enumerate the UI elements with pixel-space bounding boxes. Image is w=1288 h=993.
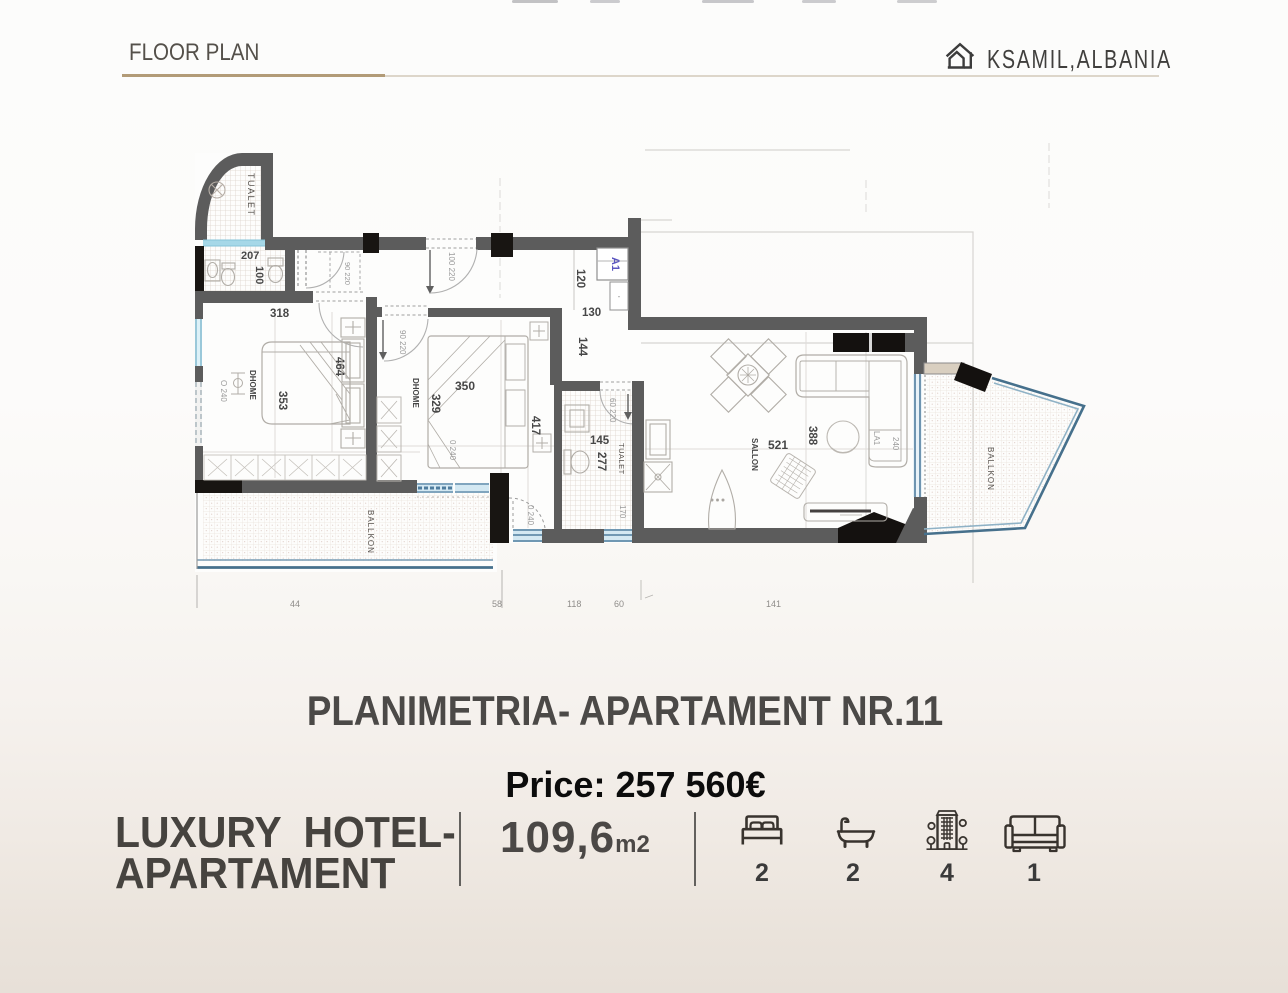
svg-text:TUALET: TUALET bbox=[617, 443, 626, 475]
svg-text:BALLKON: BALLKON bbox=[366, 510, 375, 554]
svg-text:118: 118 bbox=[567, 599, 581, 609]
svg-text:350: 350 bbox=[455, 379, 475, 393]
svg-text:144: 144 bbox=[576, 337, 588, 357]
svg-text:277: 277 bbox=[595, 452, 607, 471]
svg-text:100 220: 100 220 bbox=[447, 252, 456, 281]
svg-text:170: 170 bbox=[618, 505, 627, 519]
svg-text:DHOME: DHOME bbox=[411, 378, 420, 408]
svg-text:A1: A1 bbox=[609, 257, 621, 271]
svg-text:145: 145 bbox=[590, 435, 610, 447]
svg-text:LA1: LA1 bbox=[872, 431, 881, 446]
svg-text:60 220: 60 220 bbox=[608, 398, 617, 423]
svg-text:353: 353 bbox=[276, 391, 288, 410]
svg-text:240: 240 bbox=[891, 437, 900, 451]
svg-text:BALLKON: BALLKON bbox=[986, 447, 995, 491]
svg-text:SALLON: SALLON bbox=[750, 438, 759, 471]
svg-text:O 240: O 240 bbox=[219, 380, 228, 402]
svg-text:464: 464 bbox=[333, 357, 345, 377]
svg-text:417: 417 bbox=[529, 416, 541, 435]
svg-text:60: 60 bbox=[614, 599, 624, 609]
svg-text:318: 318 bbox=[270, 308, 290, 320]
svg-text:130: 130 bbox=[582, 307, 601, 319]
svg-text:388: 388 bbox=[806, 426, 818, 446]
svg-text:90 220: 90 220 bbox=[398, 330, 407, 355]
svg-text:44: 44 bbox=[290, 599, 300, 609]
svg-text:120: 120 bbox=[574, 269, 586, 288]
svg-text:0 240: 0 240 bbox=[526, 505, 535, 526]
svg-text:TUALET: TUALET bbox=[246, 173, 256, 217]
svg-text:0 240: 0 240 bbox=[448, 440, 457, 461]
svg-text:100: 100 bbox=[253, 266, 265, 284]
svg-text:90 220: 90 220 bbox=[343, 262, 352, 285]
svg-text:329: 329 bbox=[429, 394, 441, 413]
svg-text:-: - bbox=[618, 292, 621, 301]
svg-text:58: 58 bbox=[492, 599, 502, 609]
svg-text:DHOME: DHOME bbox=[248, 370, 257, 400]
svg-text:521: 521 bbox=[768, 438, 788, 452]
svg-text:141: 141 bbox=[766, 599, 781, 609]
svg-text:207: 207 bbox=[241, 250, 259, 262]
